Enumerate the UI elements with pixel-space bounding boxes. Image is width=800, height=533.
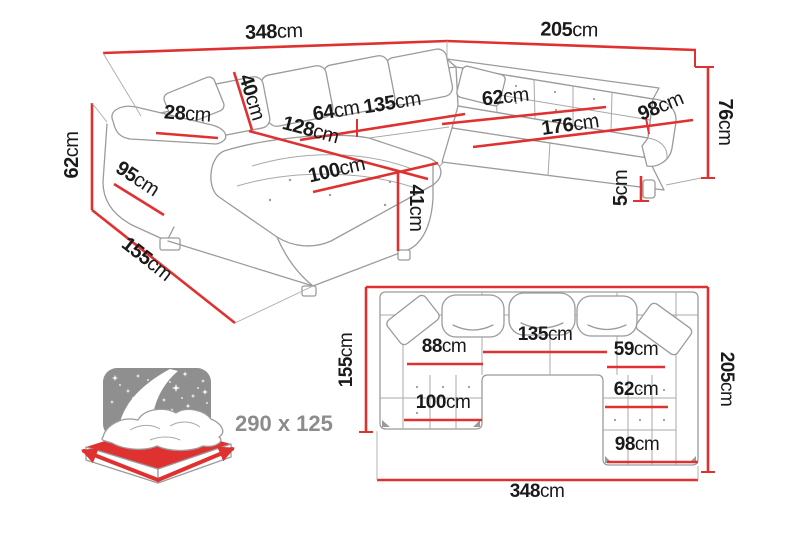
plan-view: 155cm 205cm 88cm 135cm 59cm 62cm 100cm 9… bbox=[336, 287, 737, 502]
sofa-leg bbox=[398, 250, 410, 260]
plan-label-88: 88cm bbox=[422, 336, 466, 357]
diagram-canvas: 348cm 205cm 40cm 28cm 64cm 135cm 128cm 6… bbox=[0, 0, 800, 533]
dim-label-348-top: 348cm bbox=[245, 20, 303, 44]
dim-label-28: 28cm bbox=[163, 101, 211, 126]
plan-label-100: 100cm bbox=[416, 392, 471, 413]
corner-seat bbox=[369, 127, 449, 138]
plan-label-155: 155cm bbox=[336, 333, 357, 388]
plan-label-59: 59cm bbox=[614, 339, 658, 360]
plan-label-62: 62cm bbox=[614, 379, 658, 400]
sofa-leg bbox=[643, 180, 655, 198]
plan-seat-cushion bbox=[442, 295, 504, 337]
plan-seat-cushion bbox=[577, 296, 637, 336]
dim-label-41: 41cm bbox=[405, 185, 427, 232]
sleeping-function-icon: 290 x 125 bbox=[84, 368, 333, 483]
dim-label-5: 5cm bbox=[610, 170, 632, 206]
plan-label-205: 205cm bbox=[716, 352, 737, 407]
dim-label-205-top: 205cm bbox=[540, 19, 598, 42]
plan-label-135: 135cm bbox=[518, 324, 573, 345]
dim-label-76: 76cm bbox=[714, 99, 736, 146]
dim-line-205 bbox=[447, 41, 696, 50]
perspective-view: 348cm 205cm 40cm 28cm 64cm 135cm 128cm 6… bbox=[61, 19, 736, 323]
plan-label-98: 98cm bbox=[615, 434, 659, 455]
product-dimension-diagram: 348cm 205cm 40cm 28cm 64cm 135cm 128cm 6… bbox=[0, 0, 800, 533]
sofa-line-art bbox=[103, 48, 676, 296]
sleeping-size-label: 290 x 125 bbox=[235, 411, 333, 436]
plan-label-348: 348cm bbox=[510, 481, 565, 502]
dim-label-62-left: 62cm bbox=[61, 132, 83, 179]
dim-label-95: 95cm bbox=[112, 157, 163, 201]
